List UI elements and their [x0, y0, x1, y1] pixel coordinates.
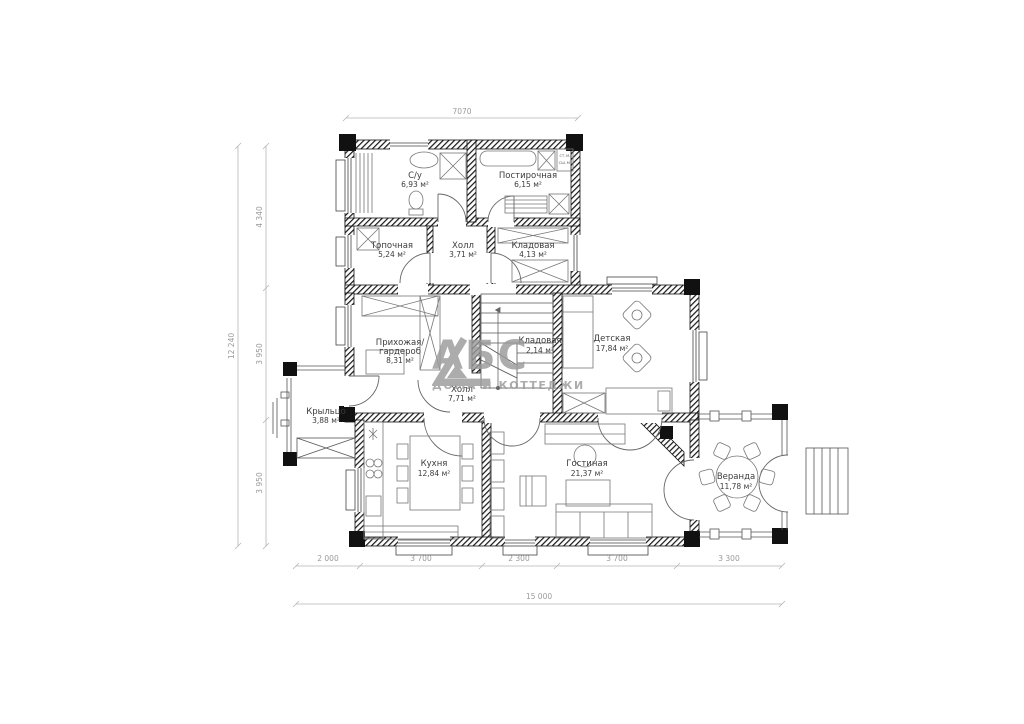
room-area-kids: 17,84 м²: [596, 344, 629, 353]
dim-bottom-total: 15 000: [526, 592, 552, 601]
room-area-stair-storage: 2,14 м²: [526, 346, 554, 355]
room-area-hall-top: 3,71 м²: [449, 250, 477, 259]
room-area-su: 6,93 м²: [401, 180, 429, 189]
floor-plan-drawing: С/у 6,93 м² Постирочная 6,15 м² ст.м. сш…: [0, 0, 1024, 724]
dim-left-seg-1: 4 340: [255, 206, 264, 228]
washer-label: ст.м.: [559, 154, 570, 159]
room-area-storage: 4,13 м²: [519, 250, 547, 259]
dim-left-total: 12 240: [227, 333, 236, 359]
room-label-kids: Детская: [594, 334, 631, 344]
kids-room-furniture: [563, 296, 672, 414]
dim-left-seg-3: 3 950: [255, 472, 264, 494]
room-area-porch: 3,88 м²: [312, 416, 340, 425]
room-label-living: Гостиная: [566, 459, 607, 469]
dim-bottom-seg-5: 3 300: [718, 554, 740, 563]
room-area-veranda: 11,78 м²: [720, 482, 753, 491]
dim-bottom-seg-2: 3 700: [410, 554, 432, 563]
room-label-veranda: Веранда: [717, 472, 755, 482]
dim-top-width: 7070: [452, 107, 471, 116]
dryer-label: сш.м.: [559, 161, 572, 166]
room-area-entry: 8,31 м²: [386, 356, 414, 365]
dim-bottom-seg-1: 2 000: [317, 554, 339, 563]
floor-plan-page: С/у 6,93 м² Постирочная 6,15 м² ст.м. сш…: [0, 0, 1024, 724]
room-label-kitchen: Кухня: [421, 459, 448, 469]
room-area-living: 21,37 м²: [571, 469, 604, 478]
dim-bottom-seg-3: 2 300: [508, 554, 530, 563]
room-label-stair-storage: Кладовая: [518, 336, 561, 346]
room-area-hall-mid: 7,71 м²: [448, 394, 476, 403]
living-room-furniture: [490, 424, 652, 538]
dim-bottom-seg-4: 3 700: [606, 554, 628, 563]
kitchen-furniture: [364, 422, 473, 539]
room-area-kitchen: 12,84 м²: [418, 469, 451, 478]
room-area-laundry: 6,15 м²: [514, 180, 542, 189]
room-area-boiler: 5,24 м²: [378, 250, 406, 259]
dim-left-seg-2: 3 950: [255, 343, 264, 365]
